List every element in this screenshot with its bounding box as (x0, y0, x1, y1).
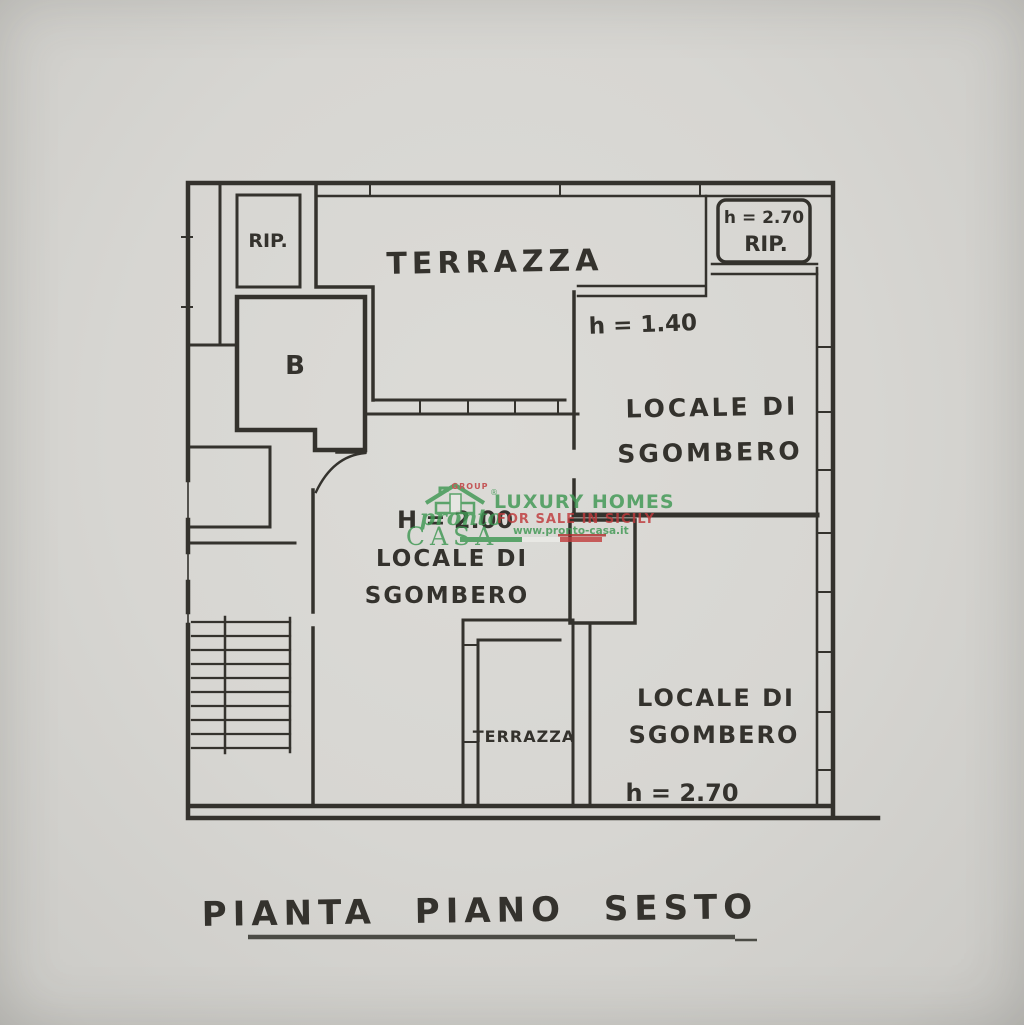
label-storage-upper-2: SGOMBERO (617, 436, 803, 468)
label-storage-upper-1: LOCALE DI (625, 391, 798, 423)
wall-small-room-left (190, 447, 295, 543)
label-terrace-bottom: TERRAZZA (473, 727, 575, 746)
label-rip-top-left: RIP. (248, 230, 287, 252)
wall-bottom-terrace (463, 620, 590, 806)
label-rip-top-right-height: h = 2.70 (724, 208, 804, 228)
label-room-b: B (285, 351, 305, 381)
floor-plan-svg: TERRAZZA RIP. B h = 2.70 RIP. h = 1.40 L… (0, 0, 1024, 1025)
label-rip-top-right: RIP. (744, 232, 788, 256)
watermark-group-text: GROUP (452, 482, 489, 491)
wall-terrace-mullions (420, 400, 558, 414)
label-terrace-top: TERRAZZA (386, 243, 604, 282)
plan-title: PIANTA PIANO SESTO (201, 887, 758, 935)
wall-right-ticks (817, 347, 833, 770)
label-height-270-bottom: h = 2.70 (625, 779, 738, 807)
wall-corridor-top-left (188, 183, 235, 345)
wall-stair-corridor (313, 452, 365, 806)
plan-title-group: PIANTA PIANO SESTO (201, 887, 758, 940)
label-storage-center-2: SGOMBERO (365, 583, 529, 609)
label-height-140: h = 1.40 (588, 310, 697, 340)
stairs-treads (192, 622, 290, 748)
door-arc (316, 453, 365, 492)
label-storage-lower-2: SGOMBERO (629, 721, 800, 749)
stairs-stringer (225, 617, 290, 753)
watermark-brand-casa: CASA (406, 522, 498, 551)
watermark-tagline-1: LUXURY HOMES (494, 491, 675, 513)
scanned-floor-plan-page: TERRAZZA RIP. B h = 2.70 RIP. h = 1.40 L… (0, 0, 1024, 1025)
wall-terrace-band (368, 400, 578, 414)
label-storage-lower-1: LOCALE DI (637, 684, 795, 712)
